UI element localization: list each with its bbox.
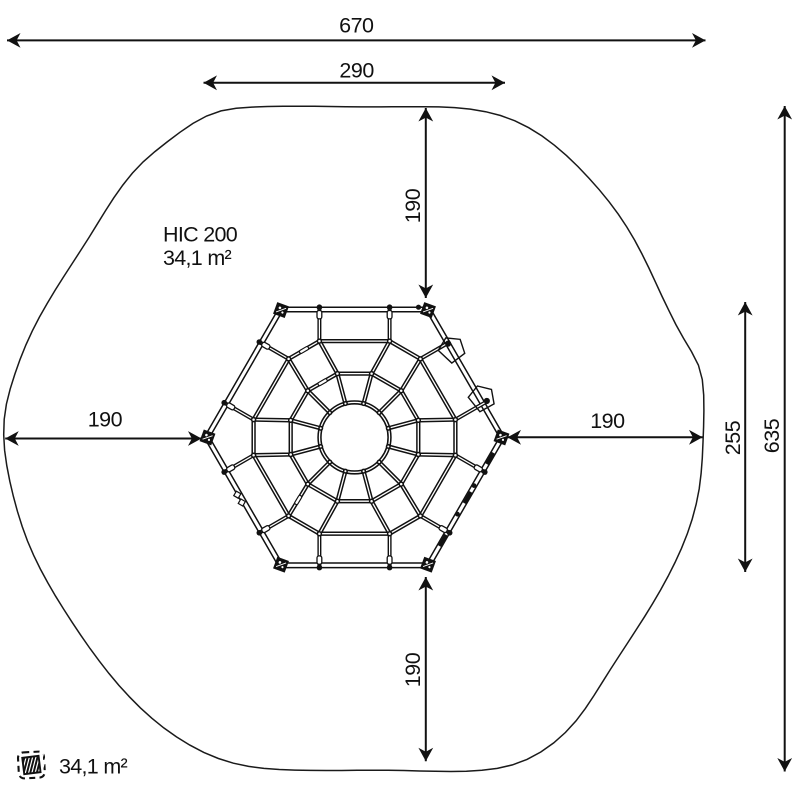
svg-text:190: 190 [401,652,425,687]
svg-text:290: 290 [339,58,374,82]
svg-text:190: 190 [590,409,625,433]
svg-text:635: 635 [760,418,784,453]
svg-text:190: 190 [401,188,425,223]
svg-text:255: 255 [721,420,745,455]
svg-text:HIC 200: HIC 200 [163,223,238,247]
svg-text:190: 190 [88,408,123,432]
svg-text:34,1 m²: 34,1 m² [59,755,128,779]
svg-text:34,1 m²: 34,1 m² [163,246,232,270]
svg-text:670: 670 [339,14,374,38]
